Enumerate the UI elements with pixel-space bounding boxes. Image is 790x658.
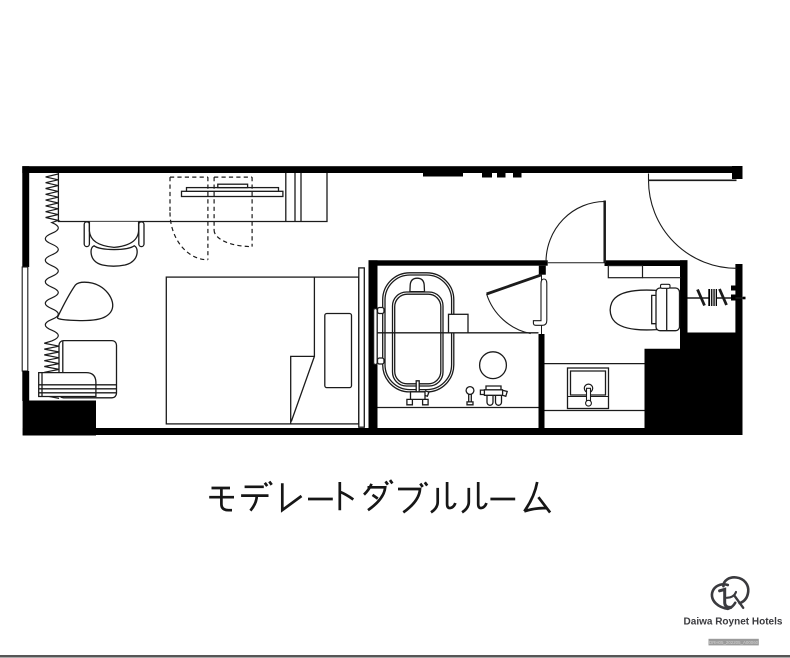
svg-text:Daiwa Roynet Hotels: Daiwa Roynet Hotels [684,616,783,627]
svg-text:DRH05_202205_A00060: DRH05_202205_A00060 [709,640,759,645]
